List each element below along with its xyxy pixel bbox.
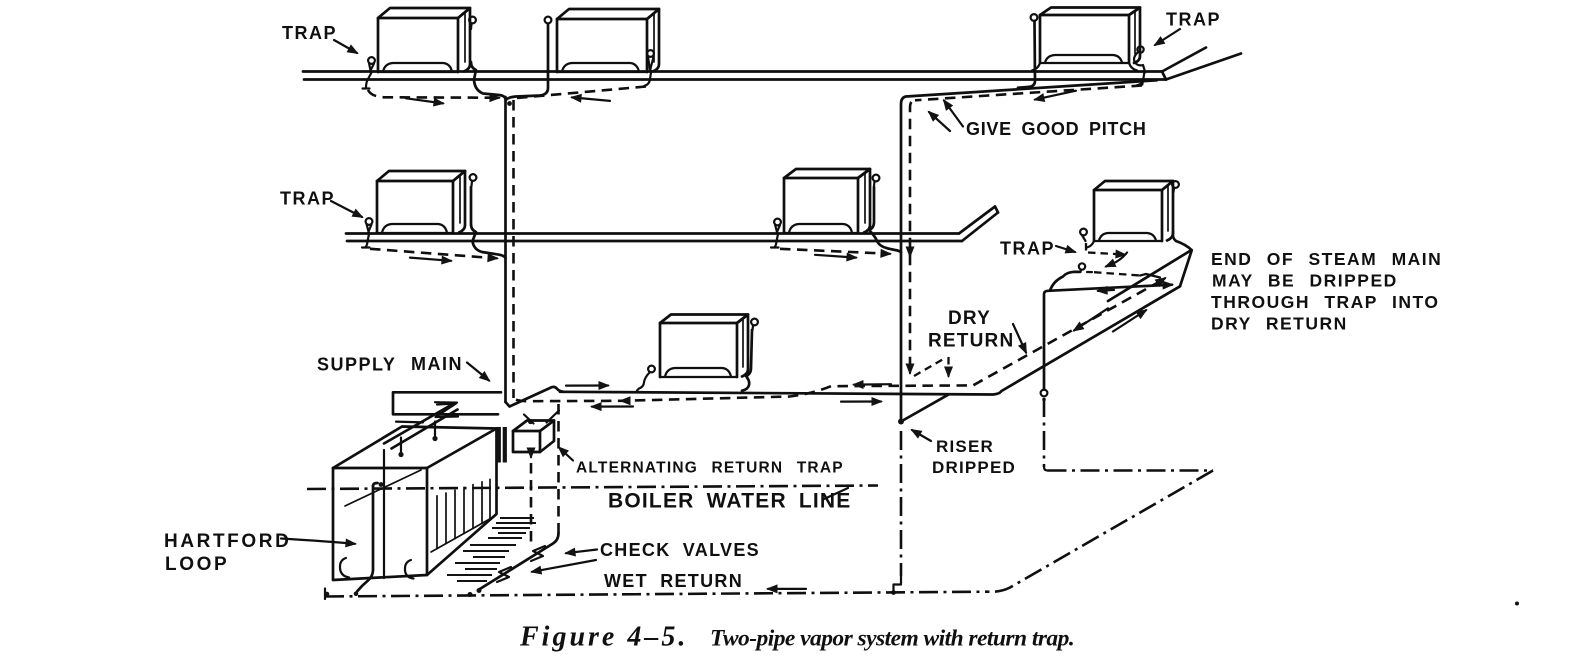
svg-text:HARTFORD: HARTFORD [164,531,291,552]
svg-text:TRAP: TRAP [1000,239,1055,259]
svg-text:Two-pipe vapor system with ret: Two-pipe vapor system with return trap. [710,626,1074,652]
svg-text:WET RETURN: WET RETURN [604,571,743,591]
svg-text:RISER: RISER [936,437,994,456]
svg-text:TRAP: TRAP [1166,10,1221,30]
svg-text:BOILER WATER LINE: BOILER WATER LINE [608,490,852,513]
svg-text:THROUGH TRAP INTO: THROUGH TRAP INTO [1211,292,1440,312]
svg-text:MAY BE DRIPPED: MAY BE DRIPPED [1212,271,1398,291]
svg-text:GIVE GOOD PITCH: GIVE GOOD PITCH [966,119,1147,139]
svg-text:END OF STEAM MAIN: END OF STEAM MAIN [1211,249,1442,269]
svg-text:SUPPLY: SUPPLY [317,355,396,375]
svg-text:TRAP: TRAP [280,189,335,209]
svg-text:RETURN: RETURN [928,331,1014,352]
svg-text:TRAP: TRAP [282,23,337,43]
svg-text:LOOP: LOOP [165,554,229,575]
svg-text:Figure 4–5.: Figure 4–5. [519,622,688,653]
svg-text:DRY RETURN: DRY RETURN [1211,314,1348,334]
svg-text:ALTERNATING RETURN TRAP: ALTERNATING RETURN TRAP [576,460,844,477]
svg-text:DRIPPED: DRIPPED [932,458,1016,477]
svg-text:MAIN: MAIN [411,354,463,374]
svg-text:DRY: DRY [948,308,991,329]
svg-text:CHECK VALVES: CHECK VALVES [600,540,760,560]
